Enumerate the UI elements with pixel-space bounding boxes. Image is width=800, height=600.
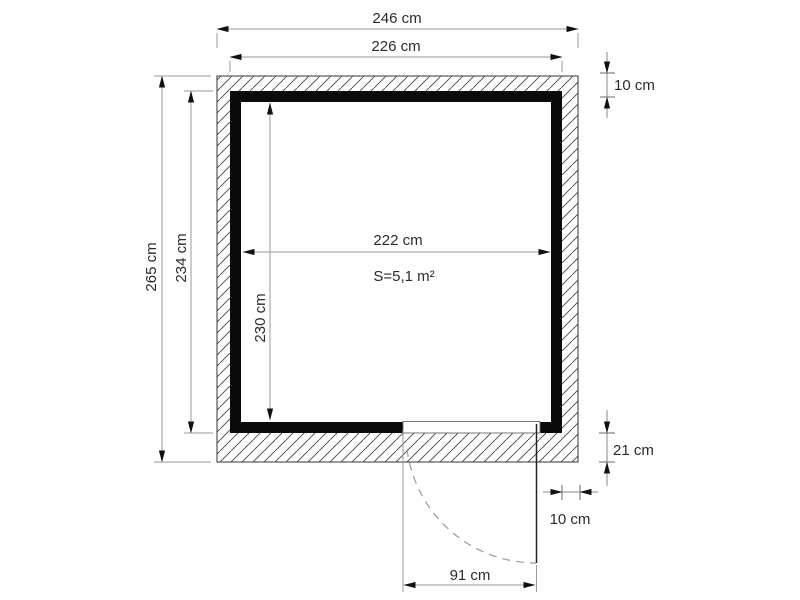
floor-plan-page: 246 cm 226 cm 265 cm 234 cm 230 cm 222 c… bbox=[0, 0, 800, 600]
wall-bottom-right-jamb bbox=[540, 422, 562, 433]
door-swing-arc bbox=[407, 449, 536, 563]
wall-left bbox=[230, 91, 241, 433]
building-plan bbox=[217, 76, 578, 563]
dim-label-interior-width: 222 cm bbox=[373, 232, 422, 249]
wall-right bbox=[551, 91, 562, 433]
dim-label-door-width: 91 cm bbox=[450, 567, 491, 584]
dim-label-wall-outer-width: 226 cm bbox=[371, 38, 420, 55]
dim-label-wall-outer-depth: 234 cm bbox=[173, 233, 190, 282]
dim-label-base-band: 21 cm bbox=[613, 442, 654, 459]
door-threshold bbox=[403, 422, 540, 434]
dim-label-overall-width: 246 cm bbox=[372, 10, 421, 27]
floor-plan-diagram: 246 cm 226 cm 265 cm 234 cm 230 cm 222 c… bbox=[0, 0, 800, 600]
dim-label-interior-depth: 230 cm bbox=[252, 293, 269, 342]
dim-label-door-side-offset: 10 cm bbox=[550, 511, 591, 528]
dim-wall-outer-depth: 234 cm bbox=[173, 91, 213, 433]
dim-label-wall-thickness-top: 10 cm bbox=[614, 77, 655, 94]
wall-bottom-left-of-door bbox=[230, 422, 403, 433]
dim-wall-thickness-top: 10 cm bbox=[600, 52, 655, 118]
dim-wall-outer-width: 226 cm bbox=[230, 38, 562, 72]
dim-door-side-offset: 10 cm bbox=[543, 485, 598, 528]
dim-label-overall-depth: 265 cm bbox=[143, 242, 160, 291]
interior-floor bbox=[230, 91, 562, 433]
floor-area-label: S=5,1 m² bbox=[373, 268, 434, 285]
wall-top bbox=[230, 91, 562, 102]
dim-base-band: 21 cm bbox=[599, 410, 654, 486]
